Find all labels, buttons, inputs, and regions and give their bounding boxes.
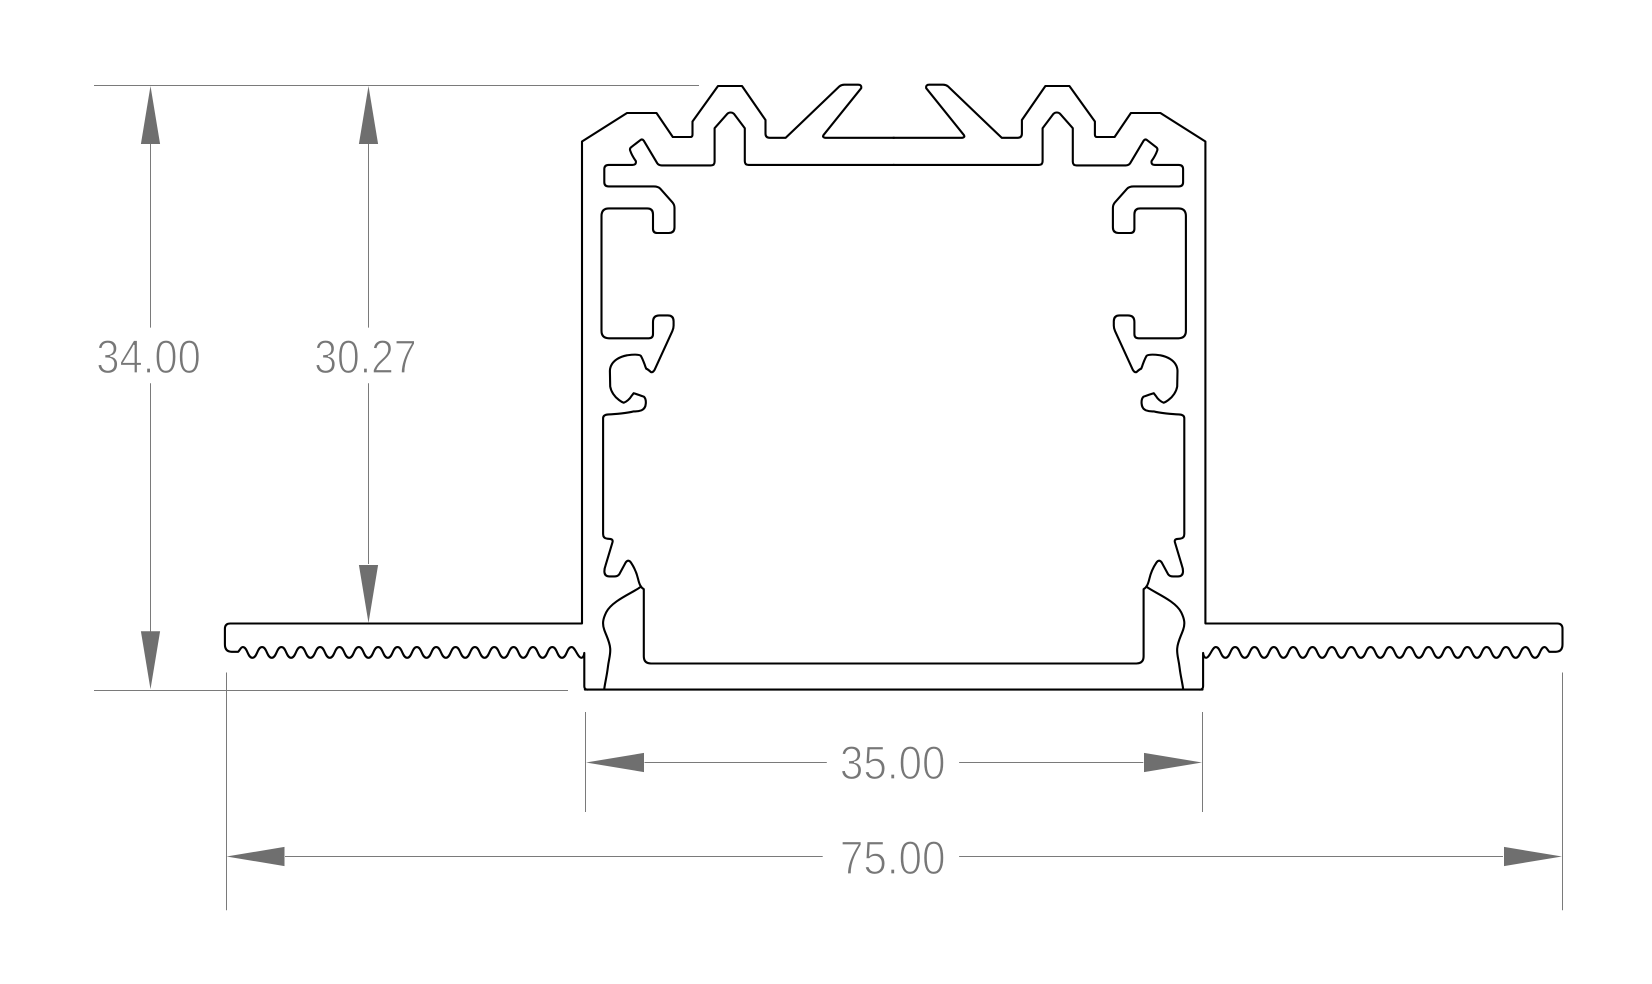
svg-text:34.00: 34.00 — [96, 331, 201, 384]
svg-text:75.00: 75.00 — [840, 832, 946, 885]
svg-text:30.27: 30.27 — [314, 331, 416, 384]
svg-text:35.00: 35.00 — [840, 737, 946, 790]
